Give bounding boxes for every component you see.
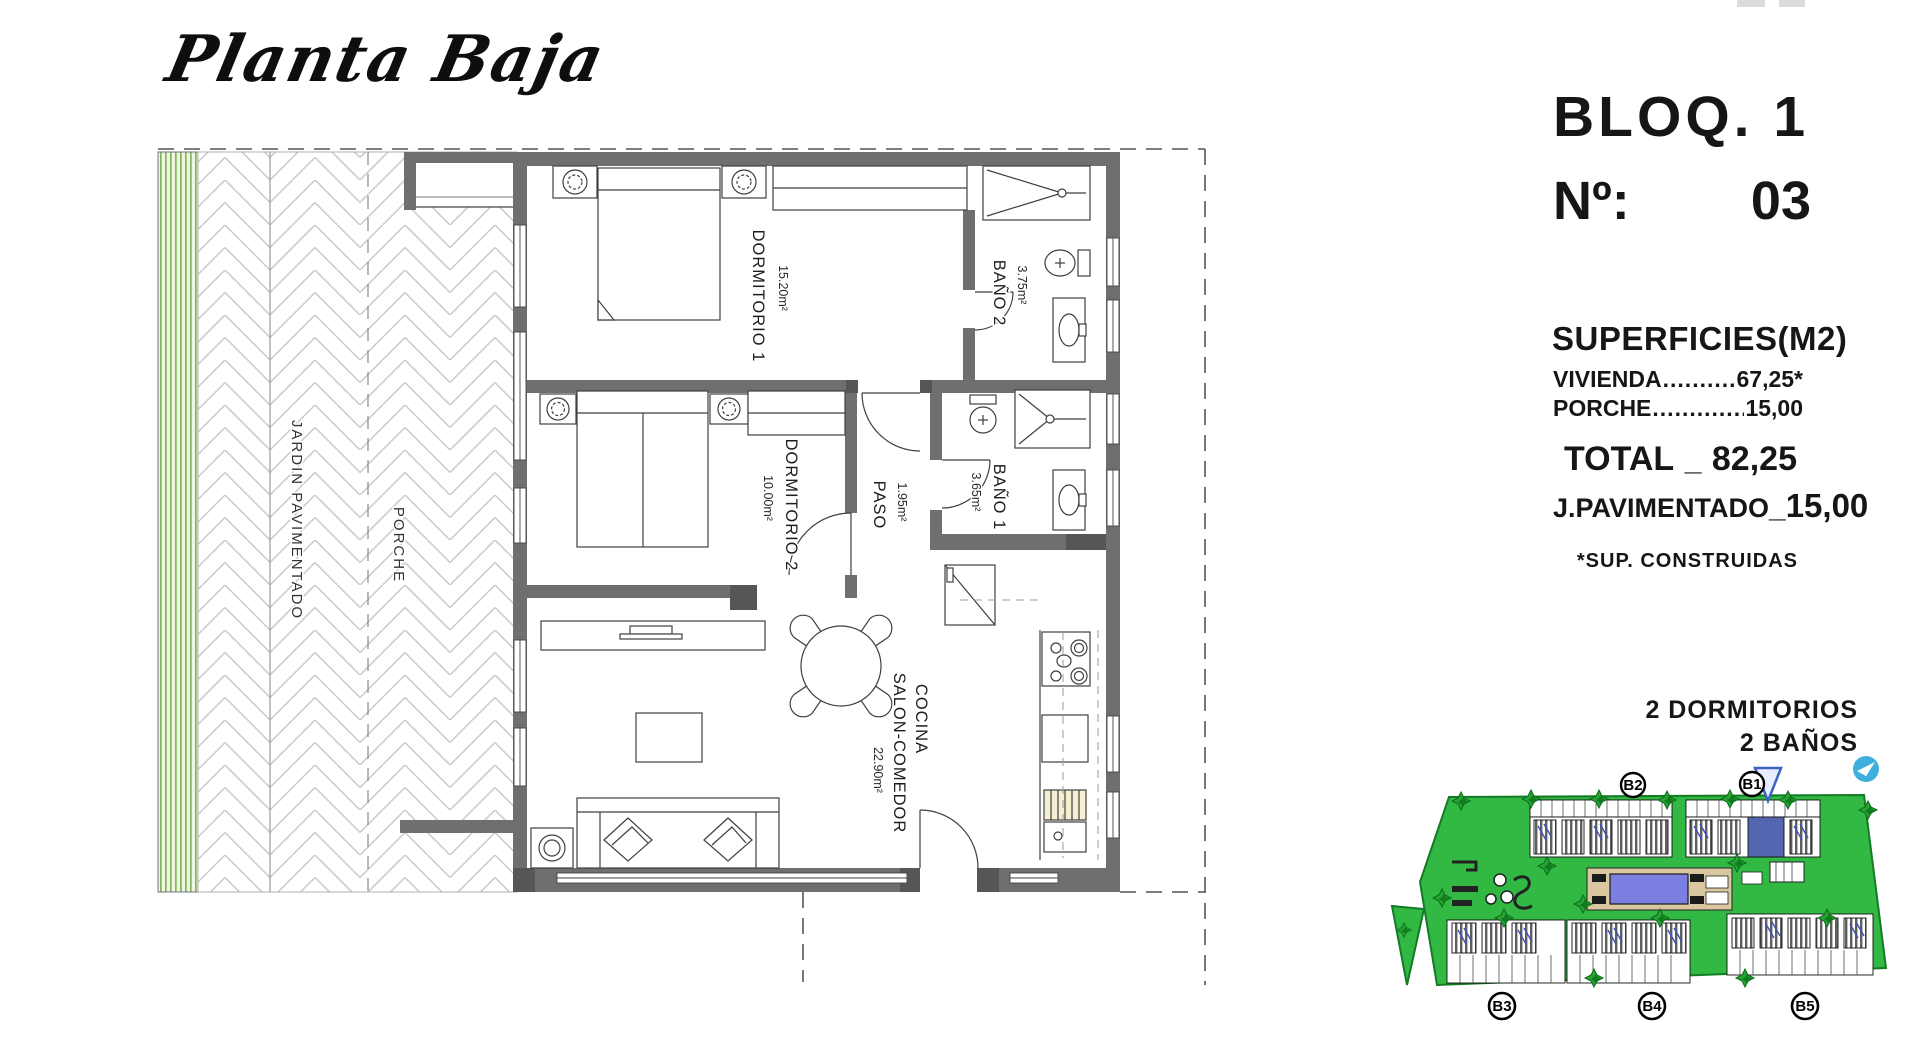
kitchen-counter — [1040, 630, 1090, 860]
toilet — [1078, 250, 1090, 276]
block-badge-b2: B2 — [1623, 777, 1642, 794]
pergola — [1770, 862, 1804, 882]
room-area-bano-1: 3.65m² — [969, 473, 983, 512]
site-plan: B2 B1 B3 B4 B5 — [1392, 756, 1886, 1019]
room-label-dormitorio-1: DORMITORIO 1 — [749, 230, 767, 363]
washing-machine — [531, 828, 573, 868]
surface-row-porche: PORCHE ...................... 15,00 — [1553, 394, 1803, 423]
room-label-paso: PASO — [870, 481, 888, 530]
block-badge-b3: B3 — [1492, 998, 1511, 1015]
room-area-dormitorio-2: 10.00m² — [761, 475, 775, 521]
feature-banos: 2 BAÑOS — [1600, 727, 1858, 760]
total-row: TOTAL _ 82,25 — [1564, 440, 1797, 479]
room-label-salon-comedor: SALON-COMEDOR — [890, 673, 908, 834]
unit-number-value: 03 — [1751, 170, 1811, 232]
unit-number-line: Nº: 03 — [1553, 170, 1811, 232]
fridge — [945, 565, 995, 625]
room-area-salon: 22.90m² — [871, 747, 885, 793]
footnote: *SUP. CONSTRUIDAS — [1553, 550, 1798, 573]
porche-label: PORCHE — [390, 507, 407, 583]
bed — [598, 168, 720, 320]
block-badge-b4: B4 — [1642, 998, 1662, 1015]
room-label-cocina: COCINA — [912, 684, 930, 754]
hedge-strip — [158, 152, 198, 892]
dining-table — [801, 626, 881, 706]
room-label-bano-1: BAÑO 1 — [990, 464, 1010, 531]
room-area-dormitorio-1: 15.20m² — [776, 265, 790, 311]
jardin-area: JARDIN PAVIMENTADO PORCHE — [158, 152, 517, 892]
superficies-heading: SUPERFICIES(M2) — [1552, 320, 1847, 358]
pavimentado-row: J.PAVIMENTADO _ 15,00 — [1553, 487, 1798, 525]
pavimentado-label: J.PAVIMENTADO — [1553, 493, 1769, 524]
features-block: 2 DORMITORIOS 2 BAÑOS — [1600, 694, 1858, 760]
surface-row-vivienda: VIVIENDA ...................... 67,25* — [1553, 365, 1803, 394]
floor-plan-drawing: JARDIN PAVIMENTADO PORCHE — [0, 0, 1920, 1055]
pool — [1610, 874, 1688, 904]
porch-storage — [404, 152, 517, 210]
toilet — [970, 395, 996, 404]
coffee-table — [636, 713, 702, 762]
block-number-title: BLOQ. 1 — [1553, 84, 1809, 150]
room-label-bano-2: BAÑO 2 — [990, 260, 1010, 327]
site-lawn-wedge — [1392, 906, 1424, 985]
porch-wall-stub — [400, 820, 515, 833]
paved-garden-tiles — [198, 152, 517, 892]
page: Planta Baja — [0, 0, 1920, 1055]
jardin-label: JARDIN PAVIMENTADO — [288, 420, 305, 620]
pavimentado-value: 15,00 — [1786, 487, 1869, 525]
highlighted-unit — [1748, 817, 1784, 857]
sofa — [577, 798, 779, 868]
entrance-door — [920, 810, 978, 868]
total-value: 82,25 — [1712, 440, 1797, 479]
unit-number-label: Nº: — [1553, 170, 1630, 232]
room-area-paso: 1.95m² — [895, 483, 909, 522]
room-area-bano-2: 3.75m² — [1015, 266, 1029, 305]
salon-comedor — [531, 565, 1098, 868]
block-badge-b5: B5 — [1795, 998, 1814, 1015]
room-label-dormitorio-2: DORMITORIO 2 — [782, 439, 800, 572]
block-badge-b1: B1 — [1742, 776, 1761, 793]
total-label: TOTAL — [1564, 440, 1674, 479]
feature-dormitorios: 2 DORMITORIOS — [1600, 694, 1858, 727]
surface-table: VIVIENDA ...................... 67,25* P… — [1553, 365, 1803, 423]
